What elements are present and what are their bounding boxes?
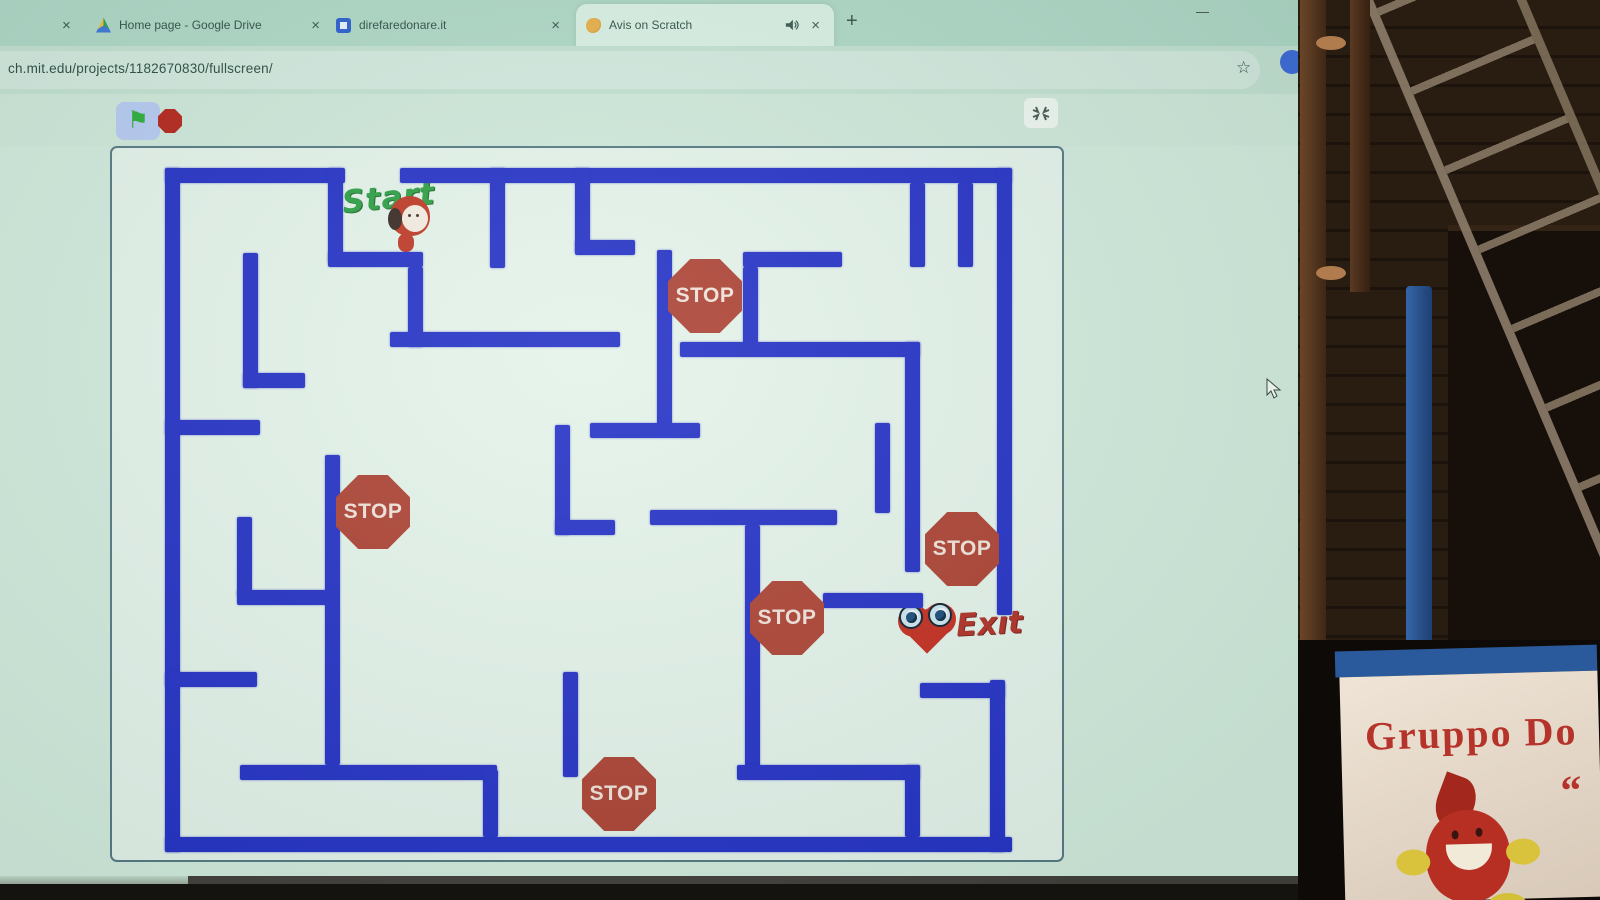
address-bar-row: ch.mit.edu/projects/1182670830/fullscree…	[0, 46, 1298, 94]
close-icon[interactable]: ×	[547, 17, 564, 34]
banner-title: Gruppo Do	[1364, 707, 1578, 760]
tab-title: Avis on Scratch	[609, 18, 692, 32]
bookmark-star-icon[interactable]: ☆	[1236, 58, 1251, 78]
browser-window: × Home page - Google Drive × direfaredon…	[0, 0, 1298, 884]
mascot-eye	[1475, 828, 1482, 837]
green-flag-icon: ⚑	[127, 106, 149, 135]
pole-knob	[1316, 36, 1346, 50]
audio-speaker-icon	[785, 18, 799, 32]
stop-all-button[interactable]	[158, 109, 182, 133]
mouse-cursor	[1266, 378, 1282, 400]
wooden-pole	[1300, 0, 1326, 660]
profile-avatar[interactable]	[1280, 50, 1298, 74]
tab-direfaredonare[interactable]: direfaredonare.it ×	[336, 8, 564, 42]
scratch-control-bar: ⚑	[0, 94, 1298, 146]
mascot-hand	[1396, 849, 1431, 876]
blue-pole	[1406, 286, 1432, 658]
mascot-eye	[1451, 830, 1458, 839]
minimize-icon[interactable]: —	[1196, 4, 1209, 19]
screen-bottom-edge	[0, 876, 188, 884]
avis-banner: Gruppo Do “	[1335, 645, 1600, 900]
green-flag-button[interactable]: ⚑	[116, 102, 160, 140]
pole-knob	[1316, 266, 1346, 280]
room-background: Gruppo Do “	[1298, 0, 1600, 900]
tab-avis-on-scratch[interactable]: Avis on Scratch ×	[576, 4, 834, 46]
google-drive-icon	[96, 18, 111, 33]
tab-title: Home page - Google Drive	[119, 18, 262, 32]
exit-fullscreen-button[interactable]	[1024, 98, 1058, 128]
scratch-icon	[586, 18, 601, 33]
site-favicon-icon	[336, 18, 351, 33]
blood-drop-mascot	[1402, 780, 1546, 900]
mascot-hand	[1506, 838, 1541, 865]
scratch-stage	[110, 146, 1064, 862]
tab-title: direfaredonare.it	[359, 18, 446, 32]
tab-google-drive[interactable]: Home page - Google Drive ×	[96, 8, 324, 42]
banner-quote: “	[1560, 767, 1582, 816]
close-icon[interactable]: ×	[58, 17, 75, 34]
close-icon[interactable]: ×	[807, 17, 824, 34]
windows-taskbar: WA⚙	[188, 876, 1298, 884]
url-text[interactable]: ch.mit.edu/projects/1182670830/fullscree…	[8, 61, 273, 76]
tab-strip: × Home page - Google Drive × direfaredon…	[0, 0, 1298, 46]
new-tab-button[interactable]: +	[846, 10, 858, 33]
close-icon[interactable]: ×	[307, 17, 324, 34]
projector-photo: × Home page - Google Drive × direfaredon…	[0, 0, 1600, 900]
fullscreen-exit-icon	[1031, 104, 1051, 122]
banner-cloth: Gruppo Do “	[1339, 671, 1600, 900]
tab-cropped[interactable]: ×	[58, 8, 75, 42]
wooden-pole	[1350, 0, 1370, 292]
